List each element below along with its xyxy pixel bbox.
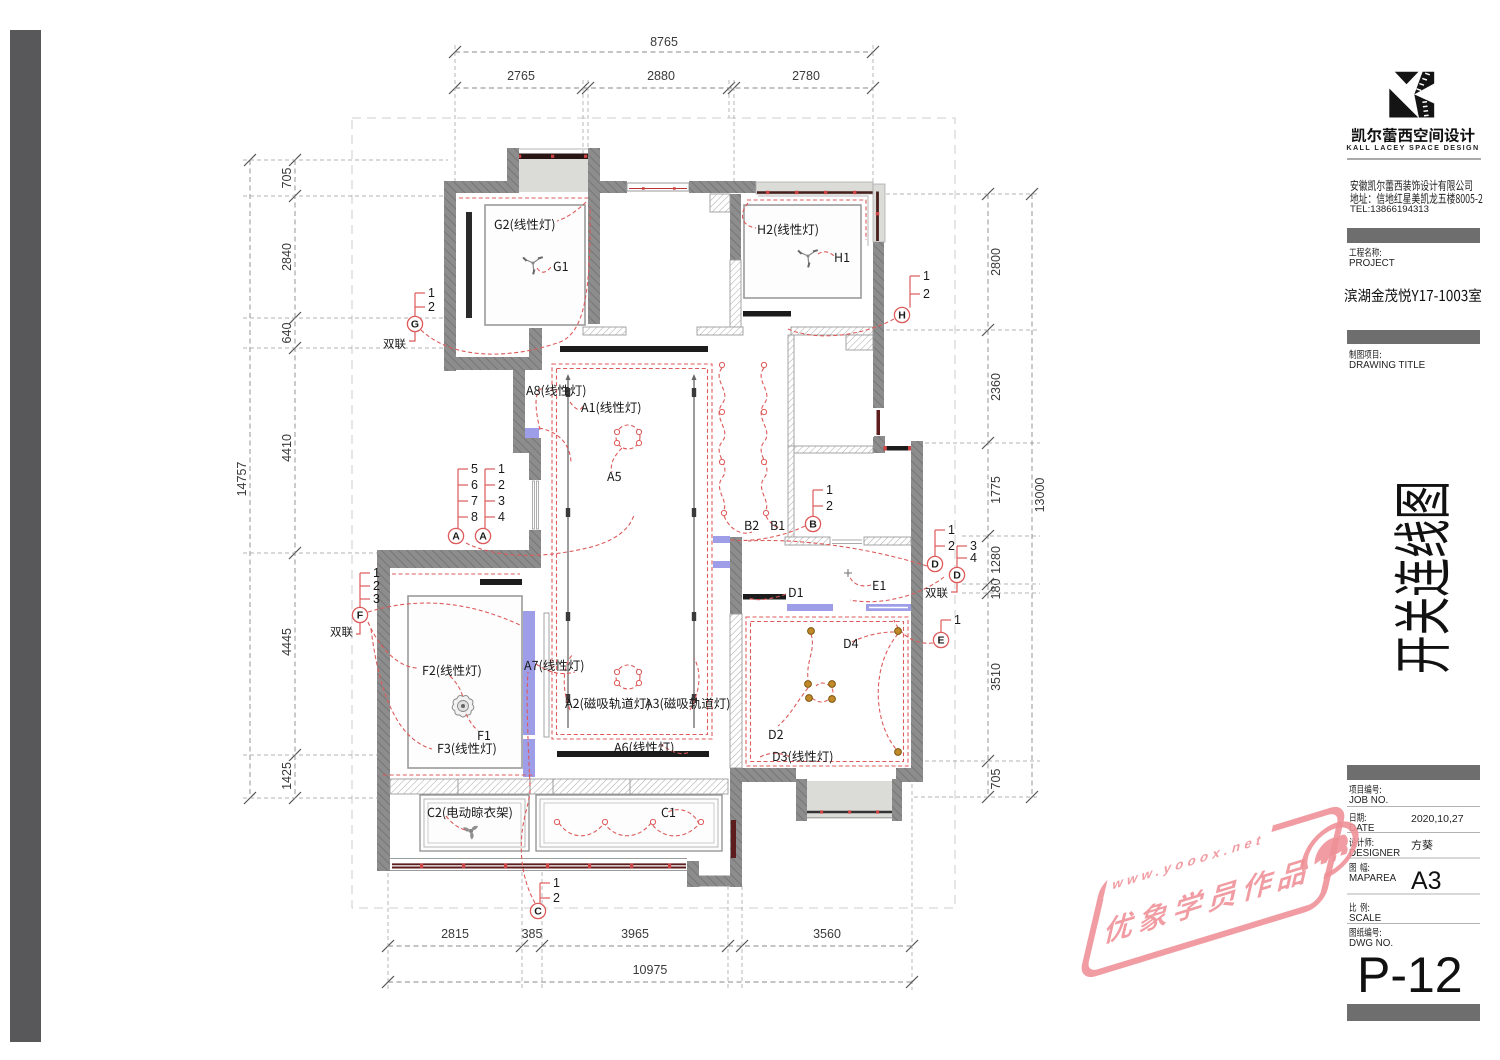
svg-text:14757: 14757 (235, 462, 249, 497)
svg-text:3965: 3965 (621, 927, 649, 941)
svg-text:4: 4 (970, 551, 977, 565)
svg-text:13000: 13000 (1033, 478, 1047, 513)
svg-text:E: E (937, 635, 944, 647)
svg-text:P-12: P-12 (1357, 947, 1463, 1003)
svg-text:1425: 1425 (280, 762, 294, 790)
svg-text:MAPAREA: MAPAREA (1349, 873, 1397, 884)
svg-text:A3: A3 (1411, 867, 1442, 895)
svg-text:F: F (357, 610, 364, 622)
svg-text:D: D (931, 559, 939, 571)
svg-text:1: 1 (498, 462, 505, 476)
svg-text:7: 7 (471, 494, 478, 508)
svg-text:2: 2 (373, 579, 380, 593)
svg-text:C: C (534, 906, 542, 918)
svg-text:3560: 3560 (813, 927, 841, 941)
svg-text:2880: 2880 (647, 69, 675, 83)
svg-text:385: 385 (522, 927, 543, 941)
svg-text:180: 180 (989, 579, 1003, 600)
svg-text:10975: 10975 (633, 963, 668, 977)
svg-text:H: H (898, 310, 906, 322)
svg-text:2840: 2840 (280, 243, 294, 271)
svg-text:SCALE: SCALE (1349, 913, 1382, 924)
svg-text:2765: 2765 (507, 69, 535, 83)
svg-text:1: 1 (923, 269, 930, 283)
svg-text:1: 1 (428, 286, 435, 300)
svg-text:DESIGNER: DESIGNER (1349, 848, 1400, 859)
svg-text:2: 2 (553, 891, 560, 905)
svg-text:PROJECT: PROJECT (1349, 258, 1395, 269)
svg-text:JOB NO.: JOB NO. (1349, 795, 1388, 806)
svg-text:G: G (411, 319, 419, 331)
svg-text:640: 640 (280, 323, 294, 344)
svg-text:A: A (452, 531, 460, 543)
svg-text:3510: 3510 (989, 663, 1003, 691)
svg-text:2: 2 (923, 287, 930, 301)
svg-text:1: 1 (954, 613, 961, 627)
svg-text:705: 705 (989, 769, 1003, 790)
svg-text:1: 1 (826, 483, 833, 497)
svg-text:2: 2 (428, 300, 435, 314)
svg-text:1: 1 (373, 566, 380, 580)
svg-text:1: 1 (948, 523, 955, 537)
svg-text:A: A (479, 531, 487, 543)
svg-text:B: B (809, 519, 817, 531)
svg-text:4445: 4445 (280, 628, 294, 656)
svg-text:8: 8 (471, 510, 478, 524)
svg-text:TEL:13866194313: TEL:13866194313 (1350, 204, 1429, 215)
svg-text:5: 5 (471, 462, 478, 476)
svg-text:2: 2 (948, 539, 955, 553)
svg-text:2780: 2780 (792, 69, 820, 83)
svg-text:2800: 2800 (989, 248, 1003, 276)
svg-text:DRAWING TITLE: DRAWING TITLE (1349, 360, 1426, 371)
svg-text:8765: 8765 (650, 35, 678, 49)
svg-text:2: 2 (826, 499, 833, 513)
svg-text:1280: 1280 (989, 546, 1003, 574)
svg-text:KALL LACEY SPACE DESIGN: KALL LACEY SPACE DESIGN (1346, 143, 1479, 152)
svg-text:2815: 2815 (441, 927, 469, 941)
svg-text:2020,10,27: 2020,10,27 (1411, 813, 1464, 825)
svg-text:D: D (953, 570, 961, 582)
svg-text:2: 2 (498, 478, 505, 492)
svg-text:3: 3 (373, 592, 380, 606)
svg-text:705: 705 (280, 168, 294, 189)
svg-text:3: 3 (498, 494, 505, 508)
svg-text:6: 6 (471, 478, 478, 492)
svg-text:4410: 4410 (280, 434, 294, 462)
svg-text:1775: 1775 (989, 476, 1003, 504)
svg-text:1: 1 (553, 876, 560, 890)
svg-text:4: 4 (498, 510, 505, 524)
svg-text:2360: 2360 (989, 373, 1003, 401)
